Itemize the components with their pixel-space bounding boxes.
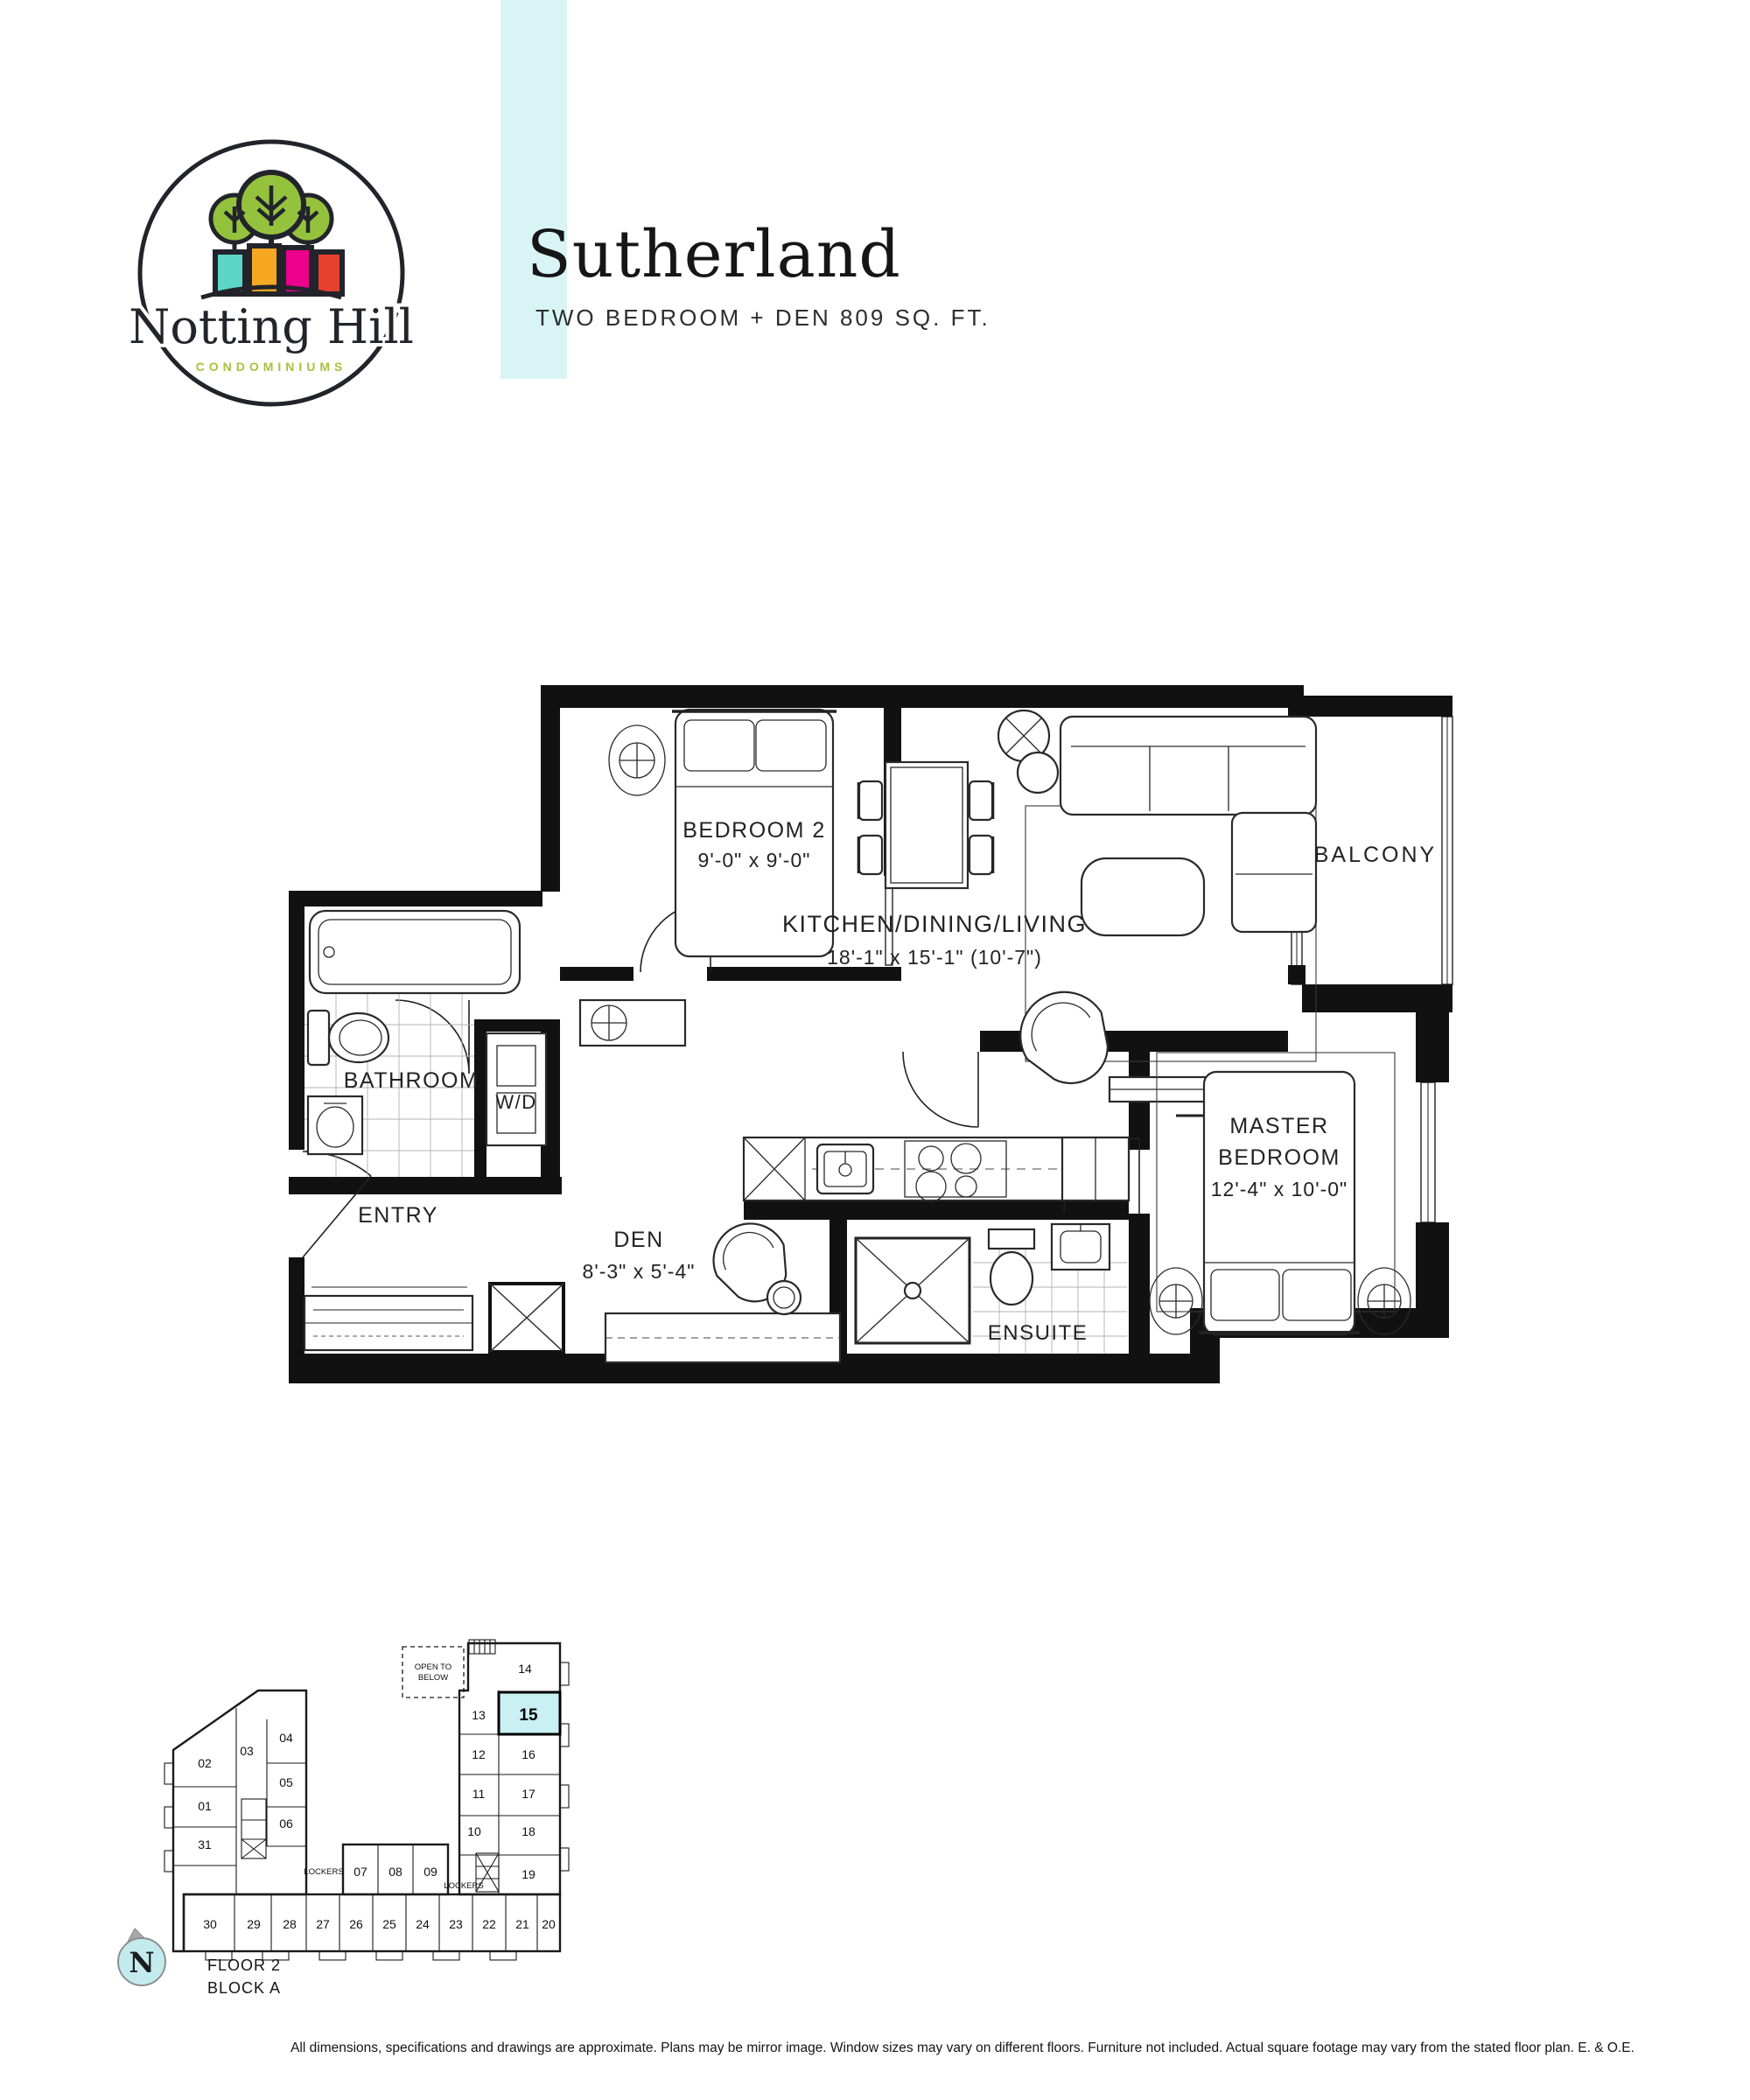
svg-text:09: 09 (423, 1865, 437, 1879)
toilet (308, 1011, 388, 1065)
dining-set (858, 762, 993, 888)
svg-text:16: 16 (521, 1747, 535, 1761)
floor-plan: BEDROOM 2 9'-0" x 9'-0" KITCHEN/DINING/L… (289, 678, 1479, 1387)
label-master-1: MASTER (1229, 1114, 1328, 1138)
svg-text:22: 22 (482, 1917, 496, 1931)
svg-text:12: 12 (472, 1747, 486, 1761)
keyplan-open-to-below: OPEN TO BELOW (402, 1647, 464, 1697)
ensuite-toilet (989, 1229, 1034, 1305)
svg-text:01: 01 (198, 1799, 212, 1813)
disclaimer-text: All dimensions, specifications and drawi… (219, 2040, 1706, 2056)
label-block: BLOCK A (207, 1979, 281, 1997)
label-wd: W/D (495, 1091, 536, 1113)
svg-text:13: 13 (472, 1708, 486, 1722)
svg-text:23: 23 (449, 1917, 463, 1931)
master-bed (1199, 1072, 1360, 1334)
kitchen-counter (744, 1137, 1129, 1201)
svg-text:05: 05 (279, 1775, 293, 1789)
label-lockers-right: LOCKERS (444, 1881, 483, 1891)
svg-text:19: 19 (521, 1867, 535, 1881)
keyplan-right-wing (459, 1640, 569, 1894)
label-kitchen: KITCHEN/DINING/LIVING (782, 911, 1087, 937)
north-compass: N (118, 1928, 165, 1985)
hall-console (580, 1000, 685, 1046)
label-den: DEN (613, 1228, 663, 1252)
coffee-table (1081, 858, 1204, 935)
logo-name: Notting Hill (129, 299, 414, 354)
key-plan: OPEN TO BELOW (96, 1636, 674, 2004)
label-bedroom2: BEDROOM 2 (682, 818, 826, 843)
notting-hill-logo: Notting Hill CONDOMINIUMS (122, 122, 420, 420)
svg-text:BELOW: BELOW (418, 1673, 448, 1683)
trees-icon (211, 172, 332, 254)
svg-text:29: 29 (247, 1917, 261, 1931)
label-master-2: BEDROOM (1218, 1145, 1340, 1170)
plan-title: Sutherland (527, 217, 901, 292)
label-entry: ENTRY (358, 1203, 438, 1228)
label-bathroom: BATHROOM (344, 1068, 479, 1093)
dims-bedroom2: 9'-0" x 9'-0" (698, 849, 811, 871)
svg-text:30: 30 (203, 1917, 217, 1931)
svg-text:11: 11 (472, 1787, 486, 1801)
svg-text:26: 26 (349, 1917, 363, 1931)
svg-text:04: 04 (279, 1731, 293, 1745)
label-balcony: BALCONY (1314, 843, 1437, 867)
logo-tagline: CONDOMINIUMS (196, 360, 347, 374)
entry-closet (304, 1287, 472, 1350)
label-floor: FLOOR 2 (207, 1956, 281, 1974)
side-table (998, 710, 1058, 793)
svg-text:18: 18 (521, 1824, 535, 1838)
bedroom2-lamp (609, 725, 665, 795)
ensuite-sink (1052, 1224, 1109, 1270)
svg-text:27: 27 (316, 1917, 330, 1931)
svg-text:31: 31 (198, 1837, 212, 1851)
den-stool (767, 1281, 801, 1314)
label-ensuite: ENSUITE (988, 1321, 1088, 1345)
shaft (490, 1284, 563, 1352)
label-lockers-left: LOCKERS (304, 1867, 343, 1877)
floorplan-sheet: Notting Hill CONDOMINIUMS Sutherland TWO… (0, 0, 1750, 2100)
plan-subtitle: TWO BEDROOM + DEN 809 SQ. FT. (535, 304, 990, 332)
svg-text:07: 07 (353, 1865, 367, 1879)
svg-text:21: 21 (515, 1917, 529, 1931)
unit-15-number: 15 (519, 1706, 538, 1725)
dims-master: 12'-4" x 10'-0" (1211, 1178, 1347, 1200)
washer-dryer (486, 1033, 546, 1145)
shower (856, 1238, 969, 1343)
svg-text:03: 03 (240, 1744, 254, 1758)
north-letter: N (129, 1946, 154, 1979)
svg-text:25: 25 (382, 1917, 396, 1931)
svg-text:10: 10 (467, 1824, 481, 1838)
svg-text:28: 28 (283, 1917, 297, 1931)
dims-den: 8'-3" x 5'-4" (583, 1260, 696, 1283)
svg-text:02: 02 (198, 1756, 212, 1770)
svg-text:OPEN TO: OPEN TO (415, 1662, 451, 1672)
bathroom-sink (308, 1096, 362, 1154)
keyplan-bottom-wing (184, 1894, 560, 1960)
svg-text:20: 20 (542, 1917, 556, 1931)
svg-text:17: 17 (521, 1787, 535, 1801)
den-desk (605, 1313, 840, 1362)
bathtub (310, 911, 520, 993)
svg-text:08: 08 (388, 1865, 402, 1879)
svg-text:24: 24 (416, 1917, 430, 1931)
svg-text:06: 06 (279, 1816, 293, 1830)
svg-text:14: 14 (518, 1662, 532, 1676)
dims-kitchen: 18'-1" x 15'-1" (10'-7") (827, 946, 1042, 969)
